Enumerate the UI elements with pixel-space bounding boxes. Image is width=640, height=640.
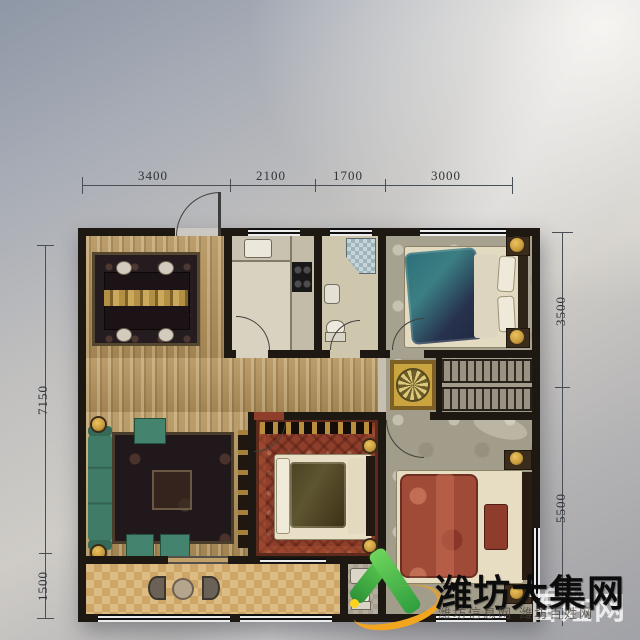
- coffee-table: [152, 470, 192, 510]
- dim-right-2: 5500: [553, 493, 569, 523]
- table-runner: [104, 290, 188, 306]
- table-lamp: [364, 440, 376, 452]
- wall-bath-right: [378, 228, 386, 358]
- balcony-chair: [148, 576, 166, 600]
- dining-chair: [116, 328, 132, 342]
- dining-chair: [158, 328, 174, 342]
- dining-chair: [158, 261, 174, 275]
- table-lamp: [510, 238, 524, 252]
- dim-top-4: 3000: [431, 168, 461, 184]
- wall-closet-bottom: [430, 412, 532, 420]
- dim-left-1: 7150: [35, 385, 51, 415]
- ottoman: [160, 534, 190, 558]
- dim-tick: [37, 245, 54, 246]
- ottoman: [126, 534, 154, 558]
- dim-tick: [315, 179, 316, 192]
- pillow: [497, 255, 516, 292]
- window-midbed-bottom: [260, 558, 326, 563]
- dim-tick: [555, 387, 570, 388]
- bedroomTR-door-gap: [390, 350, 424, 358]
- dim-tick: [82, 177, 83, 194]
- tv-console: [238, 430, 248, 548]
- dim-tick: [552, 232, 573, 233]
- wall-kitchen-bath: [314, 228, 322, 358]
- bed-sheet: [348, 458, 366, 534]
- dining-chair: [116, 261, 132, 275]
- window-balcony-1: [98, 614, 230, 622]
- window-bedroomTR: [420, 228, 506, 236]
- window-balcony-2: [240, 614, 332, 622]
- wardrobe-hangers: [440, 387, 532, 411]
- bed-sheet: [474, 254, 498, 338]
- balcony-chair: [202, 576, 220, 600]
- dim-tick: [39, 553, 52, 554]
- dim-tick: [230, 179, 231, 192]
- sofa: [88, 434, 112, 542]
- bath-door-gap: [330, 350, 360, 358]
- wall-smallbath-left: [340, 564, 348, 614]
- medallion-circle: [396, 368, 430, 402]
- headboard: [366, 456, 375, 536]
- table-lamp: [510, 452, 523, 465]
- dim-left-2: 1500: [35, 571, 51, 601]
- entry-door-arc: [176, 192, 220, 236]
- dim-line-left: [45, 245, 46, 618]
- wall-balcony-sep: [86, 556, 378, 564]
- dim-top-3: 1700: [333, 168, 363, 184]
- dim-tick: [512, 177, 513, 194]
- ottoman: [134, 418, 166, 444]
- dim-right-1: 3500: [553, 296, 569, 326]
- dim-top-2: 2100: [256, 168, 286, 184]
- stove-burners: [292, 262, 312, 292]
- logo-dot: [350, 599, 359, 608]
- balcony-opening: [168, 556, 228, 564]
- wall-kitchen-left: [224, 228, 232, 358]
- midbed-door-gap: [254, 412, 284, 420]
- table-lamp: [510, 330, 524, 344]
- hallway-floor: [86, 358, 378, 412]
- washbasin: [324, 284, 340, 304]
- watermark-caption: 潍坊信息网 潍坊百姓网: [438, 603, 594, 622]
- photo-of-floor-plan: 3400 2100 1700 3000 7150 1500 3500 5500: [0, 0, 640, 640]
- wall-closet-left: [436, 358, 442, 414]
- dim-tick: [37, 618, 54, 619]
- entry-door-leaf: [218, 192, 221, 236]
- kitchen-sink: [244, 239, 272, 258]
- dim-top-1: 3400: [138, 168, 168, 184]
- balcony-table: [172, 578, 194, 600]
- pillow: [276, 458, 290, 534]
- wall-outer-left: [78, 228, 86, 622]
- dim-line-top: [82, 185, 512, 186]
- floor-lamp: [92, 418, 105, 431]
- pillow: [497, 296, 516, 333]
- bed-cushion: [484, 504, 508, 550]
- wardrobe-hangers: [440, 359, 532, 383]
- kitchen-counter-right: [290, 236, 316, 350]
- dim-tick: [385, 179, 386, 192]
- bed-blanket: [290, 462, 346, 528]
- kitchen-door-gap: [236, 350, 268, 358]
- window-bath: [330, 228, 372, 236]
- window-kitchen: [248, 228, 300, 236]
